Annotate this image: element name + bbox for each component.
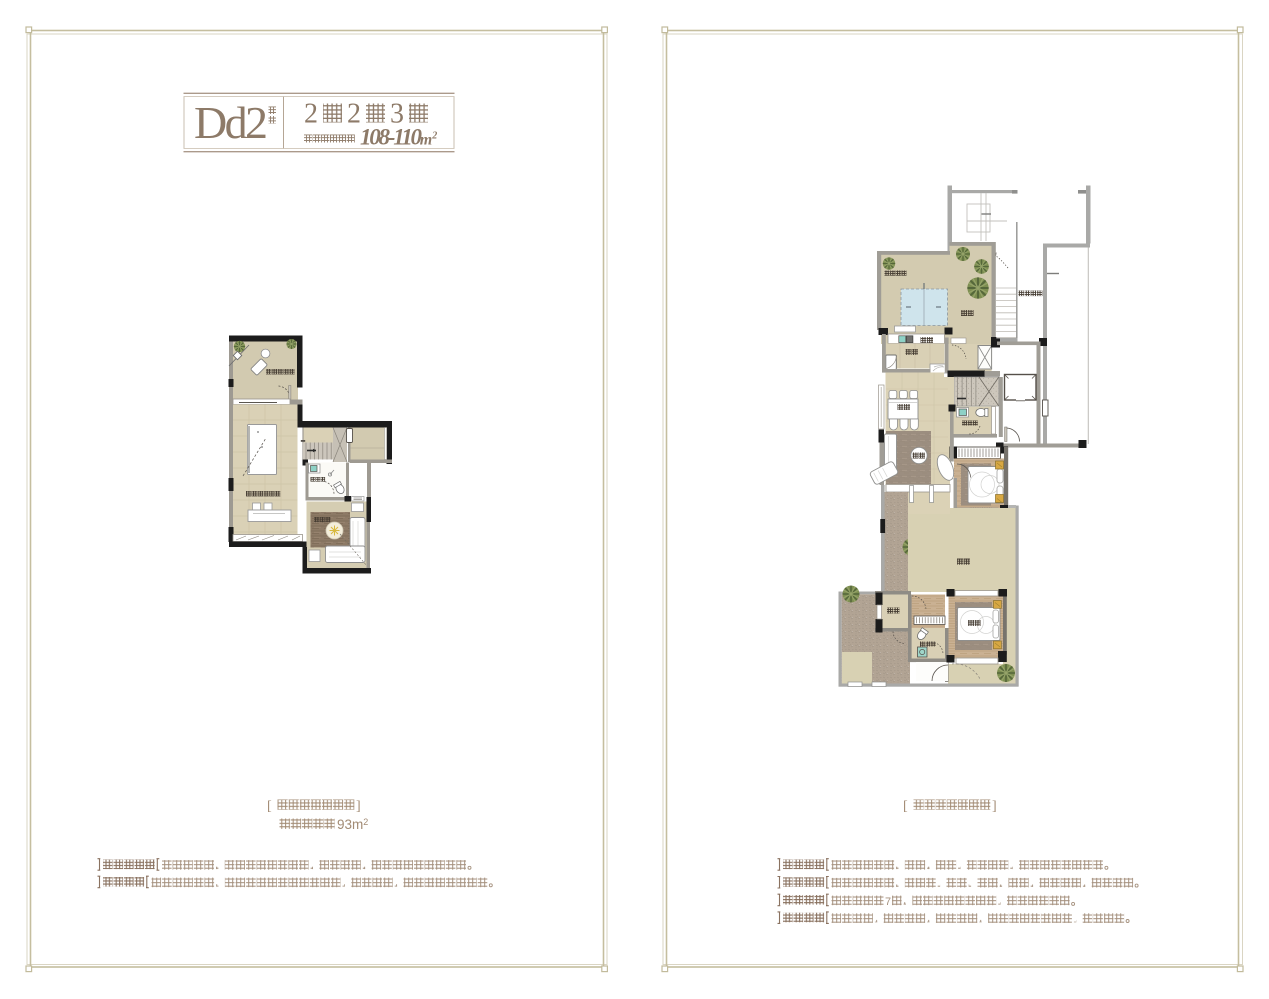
svg-text:2: 2	[304, 99, 318, 130]
svg-text:2: 2	[347, 99, 361, 130]
svg-text:7: 7	[885, 896, 891, 908]
svg-text:[: [	[267, 799, 272, 814]
svg-text:Dd2: Dd2	[194, 97, 268, 148]
svg-text:108-110m2: 108-110m2	[360, 125, 437, 150]
svg-text:[: [	[903, 799, 908, 814]
svg-text:]: ]	[992, 799, 997, 814]
svg-text:93m2: 93m2	[337, 817, 368, 832]
svg-text:]: ]	[356, 799, 361, 814]
